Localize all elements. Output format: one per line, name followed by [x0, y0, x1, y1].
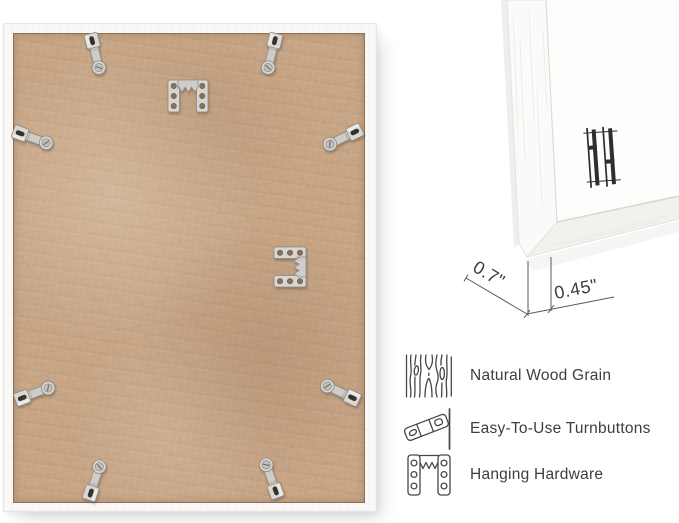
sawtooth-hanger-middle — [274, 247, 306, 287]
product-infographic: 0.7" 0.45" — [0, 0, 679, 523]
feature-label: Natural Wood Grain — [470, 367, 611, 385]
dimension-depth-label: 0.7" — [470, 257, 509, 291]
feature-label: Hanging Hardware — [470, 466, 603, 484]
turnbutton — [11, 124, 55, 151]
feature-row-wood-grain: Natural Wood Grain — [403, 353, 611, 399]
sawtooth-hanger-top — [168, 80, 208, 112]
frame-corner-closeup: 0.7" 0.45" — [464, 0, 679, 318]
mat-board — [546, 0, 679, 222]
wood-grain-icon — [403, 353, 455, 399]
turnbutton — [84, 32, 107, 76]
turnbutton — [260, 32, 283, 76]
feature-row-turnbuttons: Easy-To-Use Turnbuttons — [403, 407, 651, 451]
turnbutton — [321, 123, 365, 154]
turnbutton-icon — [403, 407, 455, 451]
feature-label: Easy-To-Use Turnbuttons — [470, 420, 651, 438]
dimension-face-width-label: 0.45" — [553, 275, 600, 303]
hanging-hardware-icon — [403, 453, 455, 497]
feature-row-hanging-hardware: Hanging Hardware — [403, 452, 603, 498]
turnbutton — [13, 379, 57, 407]
turnbutton — [257, 456, 284, 500]
turnbutton — [318, 377, 362, 407]
frame-back-hardware — [11, 32, 364, 502]
turnbutton — [82, 458, 108, 502]
